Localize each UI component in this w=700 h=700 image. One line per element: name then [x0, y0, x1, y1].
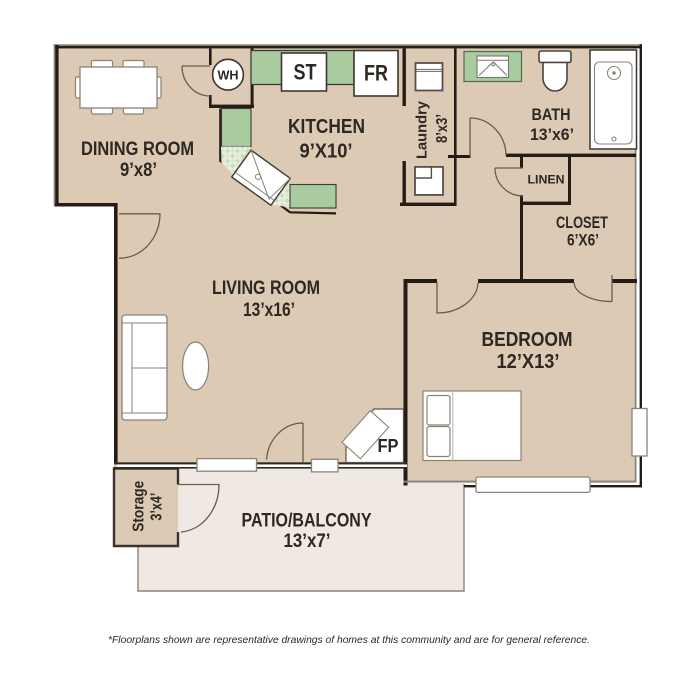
svg-text:CLOSET: CLOSET — [556, 213, 608, 232]
svg-text:PATIO/BALCONY: PATIO/BALCONY — [242, 511, 372, 532]
svg-text:3’x4’: 3’x4’ — [149, 493, 166, 521]
svg-text:9’x8’: 9’x8’ — [120, 160, 157, 181]
svg-text:KITCHEN: KITCHEN — [288, 116, 365, 138]
svg-text:13’x6’: 13’x6’ — [530, 125, 574, 144]
svg-text:BATH: BATH — [532, 105, 571, 124]
svg-text:FP: FP — [378, 436, 399, 456]
svg-text:6’X6’: 6’X6’ — [567, 231, 599, 250]
svg-text:8’x3’: 8’x3’ — [434, 114, 451, 143]
svg-text:DINING ROOM: DINING ROOM — [81, 139, 194, 160]
svg-text:LIVING ROOM: LIVING ROOM — [212, 278, 320, 299]
svg-text:*Floorplans shown are represen: *Floorplans shown are representative dra… — [108, 634, 590, 646]
svg-text:13’x16’: 13’x16’ — [243, 300, 295, 321]
svg-text:Laundry: Laundry — [414, 100, 431, 159]
svg-text:WH: WH — [218, 67, 239, 82]
svg-text:ST: ST — [294, 60, 317, 85]
svg-text:FR: FR — [364, 61, 388, 86]
svg-text:Storage: Storage — [131, 481, 148, 532]
svg-text:9’X10’: 9’X10’ — [300, 141, 353, 163]
svg-text:12’X13’: 12’X13’ — [497, 351, 560, 373]
svg-text:LINEN: LINEN — [528, 175, 565, 187]
svg-text:13’x7’: 13’x7’ — [284, 531, 331, 552]
svg-text:BEDROOM: BEDROOM — [482, 329, 573, 351]
